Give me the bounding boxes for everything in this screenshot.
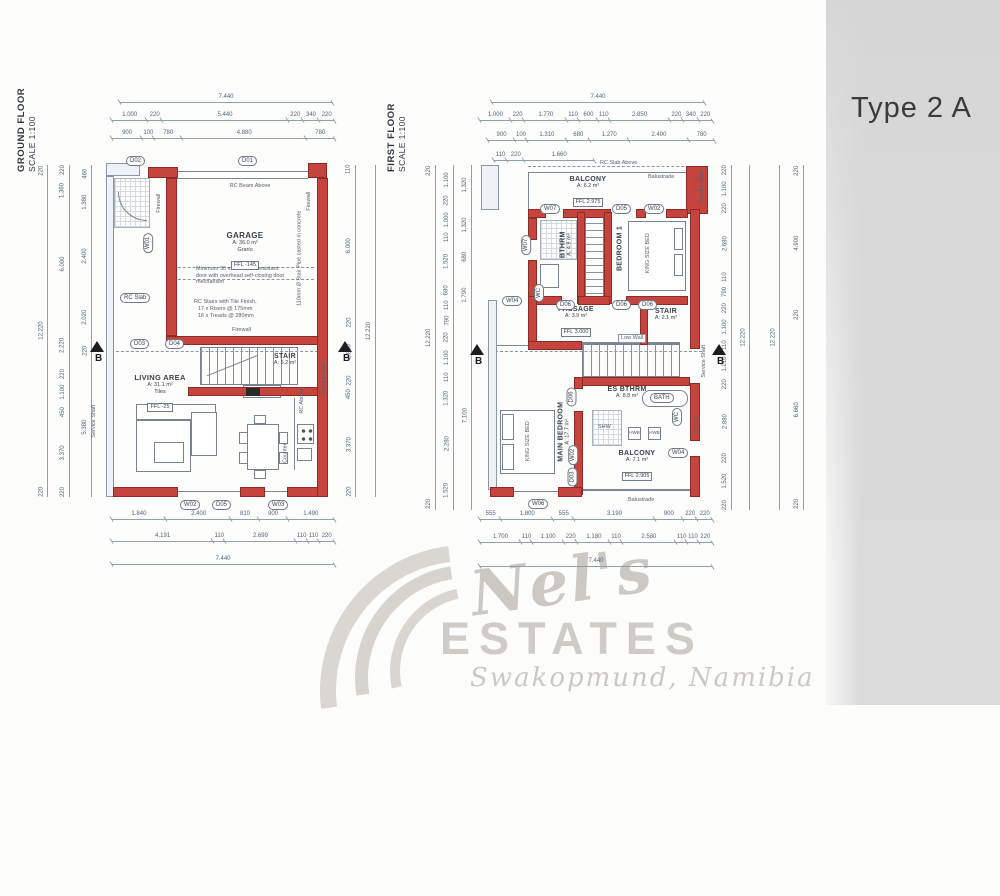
dim-value: 1.000: [480, 112, 511, 121]
dim-value: 450: [341, 388, 357, 402]
dim-value: 3.190: [574, 511, 654, 520]
dim-value: 1.320: [445, 178, 485, 192]
dim-value: 900: [259, 511, 288, 520]
service-shaft-note: Service Shaft: [699, 170, 706, 203]
room-ffl: FFL -25: [147, 403, 172, 412]
stair-treads: [585, 214, 604, 302]
gf-dim-bot-1: 1.840 2.400 810 900 1.490: [112, 511, 334, 520]
dim-value: 1.100: [50, 385, 76, 399]
gf-dim-top-2: 1.000 220 5.440 220 340 220: [112, 112, 334, 121]
dim-value: 220: [720, 451, 730, 465]
dim-value: 2.400: [52, 249, 118, 263]
rc-slab-above-note: RC Slab Above: [600, 160, 637, 167]
room-name: BEDROOM 1: [617, 217, 624, 281]
room-ffl: FFL 3.000: [561, 328, 592, 337]
section-line: [490, 351, 702, 352]
door-tag: D03: [130, 339, 149, 349]
service-shaft-note: Service Shaft: [91, 405, 98, 438]
watermark-estates: ESTATES: [440, 613, 704, 665]
stove: [246, 388, 260, 396]
wall-red: [577, 212, 585, 304]
window-tag: W07: [540, 204, 560, 214]
ff-dim-bot-3: 7.440: [480, 558, 712, 567]
ff-dim-right-4: 220 4.900 220 6.660 220: [796, 165, 810, 510]
balustrade-note: Balustrade: [628, 497, 654, 504]
bed-note: KING SIZE BED: [525, 421, 532, 461]
dim-value: 780: [154, 130, 182, 139]
room-name: BTHRM: [559, 215, 566, 275]
dim-value: 220: [343, 374, 354, 388]
vanity: [540, 264, 559, 288]
room-stair: STAIR A: 5.2 m²: [255, 353, 315, 367]
dim-value: 1.660: [524, 152, 594, 161]
vent-pipe-note: VP 550: [694, 416, 701, 434]
ground-floor-title: GROUND FLOOR SCALE 1:100: [16, 88, 37, 172]
dim-value: 220: [423, 497, 435, 511]
section-line: [106, 351, 328, 352]
dim-value: 4.900: [731, 236, 863, 250]
dim-value: 1.320: [445, 218, 485, 232]
window-tag: W04: [668, 448, 688, 458]
gf-dim-bot-3: 7.440: [112, 556, 334, 565]
dim-value: 220: [319, 112, 334, 121]
dim-value: 220: [442, 331, 453, 345]
door-tag: D01: [238, 156, 257, 166]
dim-value: 220: [699, 112, 713, 121]
dim-value: 6.660: [708, 402, 886, 416]
door-tag: D06: [612, 300, 631, 310]
pillow: [502, 444, 514, 470]
room-es-bthrm: ES BTHRM A: 8.8 m²: [598, 386, 656, 400]
basin: HWB: [648, 427, 661, 440]
wc-tag: WC: [672, 408, 682, 426]
dim-value: 2.020: [57, 310, 113, 324]
watermark-location: Swakopmund, Namibia: [470, 663, 815, 693]
window-tag: W04: [502, 296, 522, 306]
floor-scale: SCALE 1:100: [27, 88, 37, 172]
dim-value: 1.840: [112, 511, 166, 520]
plan-type-title: Type 2 A: [851, 92, 972, 125]
wall-red: [604, 212, 612, 304]
dim-value: 110: [443, 230, 451, 244]
room-living: LIVING AREA A: 31.1 m² Tiles FFL -25: [128, 373, 192, 413]
door-tag: D06: [638, 300, 657, 310]
dim-value: 220: [58, 163, 68, 177]
door-tag: D02: [126, 156, 145, 166]
room-name: GARAGE: [203, 231, 287, 240]
door-tag: D06: [556, 300, 575, 310]
room-area: A: 2.1 m²: [644, 315, 688, 322]
dim-value: 1.210: [710, 357, 740, 371]
dim-value: 220: [343, 484, 354, 498]
room-ffl: FFL -145: [231, 261, 259, 270]
dim-value: 1.320: [430, 392, 465, 406]
dim-value: 220: [699, 534, 712, 543]
dim-value: 1.100: [711, 182, 739, 196]
garage-door-opening: [177, 171, 308, 179]
section-marker: [712, 344, 726, 355]
window-tag: W06: [528, 499, 548, 509]
vent-arrow: ∨: [694, 176, 698, 183]
rc-beam-note: RC Beam Above: [205, 183, 295, 190]
ff-dim-left-3: 1.320 1.320 680 1.790 7.100: [464, 165, 478, 510]
section-label: B: [343, 353, 350, 364]
room-finish: Tiles: [128, 389, 192, 396]
rc-slab-tag: RC Slab: [120, 293, 150, 303]
stair-treads: [582, 344, 680, 377]
floor-scale: SCALE 1:100: [397, 103, 407, 172]
stairs-note: RC Stairs with Tile Finish,: [194, 299, 257, 306]
dim-value: 110: [345, 162, 354, 176]
firewall-note: Firewall: [306, 192, 313, 211]
dim-value: 220: [791, 497, 803, 511]
dim-value: 220: [319, 533, 334, 542]
gf-dim-top-1: 7.440: [120, 94, 332, 103]
window-tag: W02: [568, 445, 578, 465]
room-ffl: FFL 2.975: [573, 198, 604, 207]
wall-red: [113, 487, 178, 497]
dim-value: 1.310: [527, 132, 567, 141]
wc-tag: WC: [534, 284, 544, 302]
dim-value: 12.220: [268, 331, 590, 345]
room-passage: PASSAGE A: 3.9 m² FFL 3.000: [548, 306, 604, 338]
dim-value: 900: [112, 130, 142, 139]
dim-value: 1.790: [439, 288, 491, 302]
wall-red: [558, 487, 582, 497]
window-line: [514, 491, 558, 492]
dim-value: 12.220: [601, 331, 946, 345]
stair-pipe-note: 110mm Ø Stair Pipe casted in concrete: [296, 211, 303, 306]
dim-value: 1.700: [480, 534, 521, 543]
dim-value: 5.380: [15, 420, 155, 434]
wall-red: [578, 377, 690, 386]
door-tag: D04: [165, 339, 184, 349]
ff-dim-top-2: 1.000 220 1.770 110 600 110 2.850 220 34…: [480, 112, 712, 121]
dim-value: 7.440: [480, 558, 712, 567]
service-shaft-note: Service Shaft: [701, 345, 708, 378]
dim-value: 7.440: [492, 94, 704, 103]
counter-line: [294, 398, 295, 470]
dim-value: 110: [443, 370, 451, 384]
balustrade-note: Balustrade: [648, 174, 674, 181]
pillow: [674, 228, 683, 250]
room-bthrm: BTHRM A: 4.9 m²: [559, 215, 573, 275]
dim-value: 2.400: [629, 132, 689, 141]
room-stair: STAIR A: 2.1 m²: [644, 308, 688, 322]
coffee-table: [154, 442, 184, 463]
wall-red: [287, 487, 318, 497]
wall-red: [574, 377, 583, 389]
door-tag: D05: [612, 204, 631, 214]
room-name: BALCONY: [555, 176, 621, 183]
gf-dim-bot-2: 4.191 110 2.699 110 110 220: [112, 533, 334, 542]
wall-red: [490, 487, 514, 497]
counter-note: Counter: [283, 443, 290, 463]
wall-red: [578, 296, 610, 305]
dim-value: 780: [306, 130, 334, 139]
dim-value: 220: [58, 367, 68, 381]
chair: [254, 470, 266, 479]
dim-value: 220: [720, 301, 730, 315]
window-tag: W02: [644, 204, 664, 214]
dim-value: 810: [231, 511, 258, 520]
service-shaft-note: Service Shaft: [321, 362, 328, 395]
sofa: [191, 412, 217, 456]
wall-red: [690, 456, 700, 497]
dim-value: 900: [488, 132, 515, 141]
wall-red: [626, 296, 688, 305]
dim-value: 780: [689, 132, 714, 141]
dim-value: 1.100: [432, 351, 462, 365]
dim-value: 110: [721, 270, 729, 284]
dim-value: 2.400: [166, 511, 232, 520]
gf-dim-left-2: 220 1.360 6.000 2.220 220 1.100 450 3.37…: [62, 165, 76, 497]
wall-red: [308, 163, 327, 178]
dim-value: 220: [791, 308, 803, 322]
balustrade-line: [528, 172, 704, 173]
window-line: [178, 491, 240, 492]
gf-dim-top-3: 900 100 780 4.880 780: [112, 130, 334, 139]
shower-note: SHW: [598, 424, 611, 431]
door-tag: D05: [212, 500, 231, 510]
dim-value: 220: [791, 164, 803, 178]
room-garage: GARAGE A: 36.0 m² Grano FFL -145: [203, 231, 287, 271]
room-name: BALCONY: [608, 450, 666, 457]
floor-name: FIRST FLOOR: [386, 103, 397, 172]
first-floor-title: FIRST FLOOR SCALE 1:100: [386, 103, 407, 172]
firewall-note: Firewall: [232, 327, 251, 334]
room-area: A: 3.9 m²: [548, 313, 604, 320]
door-tag: D03: [568, 467, 578, 486]
dim-value: 1.490: [288, 511, 334, 520]
ff-dim-bot-2: 1.700 110 1.100 220 1.180 110 2.580 110 …: [480, 534, 712, 543]
section-label: B: [95, 353, 102, 364]
wall-red-firewall: [166, 178, 177, 336]
ff-dim-top-4: 110 220 1.660: [494, 152, 594, 161]
room-area: A: 4.9 m²: [566, 215, 573, 275]
dim-value: 220: [58, 485, 68, 499]
dim-value: 2.850: [610, 112, 670, 121]
dim-value: 1.180: [577, 534, 610, 543]
room-finish: Grano: [203, 247, 287, 254]
room-name: ES BTHRM: [598, 386, 656, 393]
room-bedroom1: BEDROOM 1: [617, 217, 624, 281]
dim-value: 900: [655, 511, 683, 520]
window-tag: W03: [268, 500, 288, 510]
dim-value: 7.440: [112, 556, 334, 565]
dining-table: [247, 424, 279, 470]
section-label: B: [717, 356, 724, 367]
window-line: [265, 491, 287, 492]
ff-dim-top-1: 7.440: [492, 94, 704, 103]
vent-arrow: ∧: [694, 188, 698, 195]
ff-dim-left-2: 1.100 220 1.000 110 1.520 680 110 790 22…: [446, 165, 460, 510]
window-tag: W02: [180, 500, 200, 510]
room-ffl: FFL 2.905: [622, 472, 653, 481]
section-marker: [90, 341, 104, 352]
room-name: LIVING AREA: [128, 373, 192, 382]
wall-red: [240, 487, 265, 497]
dim-value: 680: [453, 250, 477, 264]
pillow: [674, 254, 683, 276]
dim-value: 1.100: [532, 534, 564, 543]
room-area: A: 6.2 m²: [555, 183, 621, 190]
room-balcony-bottom: BALCONY A: 7.1 m² FFL 2.905: [608, 450, 666, 482]
dim-value: 790: [714, 285, 736, 299]
wall-red: [148, 167, 178, 178]
balustrade-line: [583, 489, 690, 491]
dim-value: 450: [56, 405, 70, 419]
dim-value: 4.191: [112, 533, 213, 542]
gf-dim-left-3: 460 1.380 2.400 2.020 220 5.380: [84, 165, 98, 497]
floor-name: GROUND FLOOR: [16, 88, 27, 172]
dim-value: 460: [76, 167, 93, 181]
dim-value: 220: [720, 163, 730, 177]
dim-value: 790: [435, 314, 458, 328]
dim-value: 1.380: [65, 196, 105, 210]
door-tag: D06: [567, 387, 577, 406]
stairs-note: 17 x Risers @ 175mm: [198, 306, 253, 313]
room-divider-line: [497, 345, 528, 346]
basin: HWB: [628, 427, 641, 440]
low-wall-note: Low Wall: [618, 334, 646, 343]
dim-value: 2.580: [622, 534, 676, 543]
rc-above-note: RC Above: [299, 389, 306, 414]
section-label: B: [475, 356, 482, 367]
dim-value: 1.770: [524, 112, 567, 121]
room-balcony-top: BALCONY A: 6.2 m² FFL 2.975: [555, 176, 621, 208]
room-area: A: 7.1 m²: [608, 457, 666, 464]
dim-value: 1.520: [428, 484, 467, 498]
ff-dim-bot-1: 555 1.800 555 3.190 900 220 220: [480, 511, 712, 520]
dim-value: 680: [567, 132, 590, 141]
room-name: MAIN BEDROOM: [557, 392, 564, 472]
room-name: STAIR: [255, 353, 315, 360]
dim-value: 220: [442, 193, 453, 207]
section-marker: [338, 341, 352, 352]
room-area: A: 5.2 m²: [255, 360, 315, 367]
chair: [239, 432, 248, 444]
window-tag: W07: [521, 235, 531, 255]
dim-value: 220: [720, 201, 730, 215]
dim-value: 1.800: [501, 511, 553, 520]
dim-value: 4.880: [182, 130, 307, 139]
window-tag: W01: [143, 233, 153, 253]
dim-value: 220: [35, 484, 46, 498]
dim-value: 7.440: [120, 94, 332, 103]
dim-value: 1.520: [707, 474, 743, 488]
ff-dim-right-3: 12.220: [772, 165, 786, 510]
dim-value: 220: [720, 498, 730, 512]
dim-value: 1.000: [112, 112, 147, 121]
dim-value: 2.699: [225, 533, 296, 542]
wall-red: [666, 209, 688, 218]
section-marker: [470, 344, 484, 355]
dim-value: 220: [697, 511, 712, 520]
chair: [254, 415, 266, 424]
dim-value: 220: [720, 378, 730, 392]
balcony-side-line: [528, 172, 529, 212]
chair: [239, 452, 248, 464]
wall-red: [690, 209, 700, 349]
bed-note: KING SIZE BED: [645, 233, 652, 273]
room-area: A: 8.8 m²: [598, 393, 656, 400]
bath-tag: BATH: [650, 393, 674, 403]
dim-value: 1.270: [590, 132, 629, 141]
firewall-note: Firewall: [156, 194, 163, 213]
stairs-note: 16 x Treads @ 280mm: [198, 313, 254, 320]
ff-dim-top-3: 900 100 1.310 680 1.270 2.400 780: [488, 132, 714, 141]
dim-value: 5.440: [162, 112, 288, 121]
